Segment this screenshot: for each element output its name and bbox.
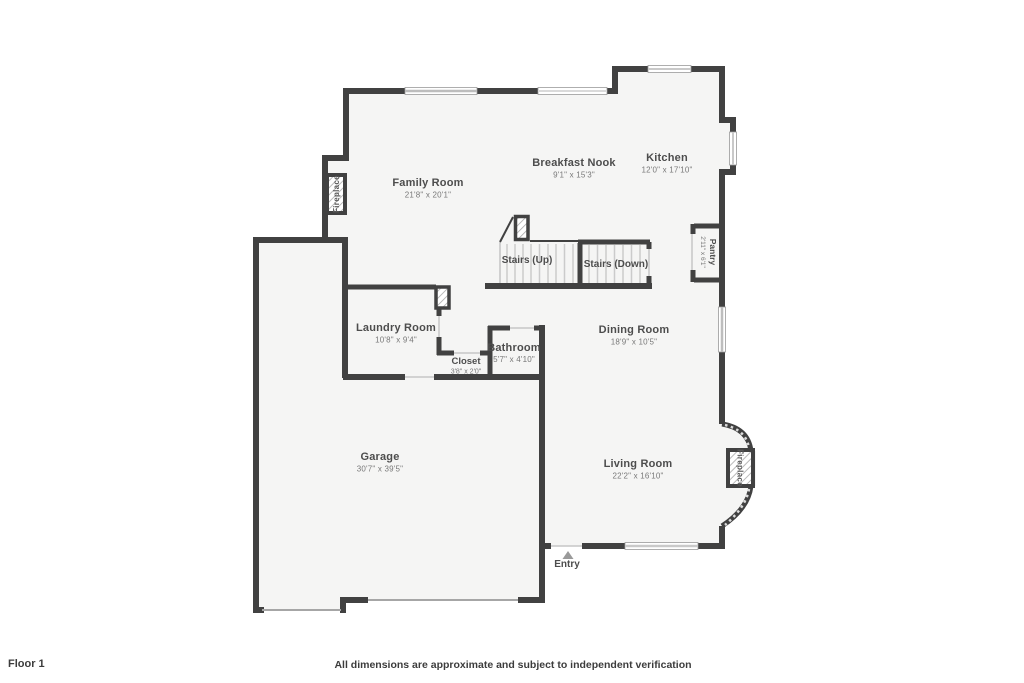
room-label-pantry: Pantry xyxy=(708,239,718,266)
family-fireplace-label-group: Fireplace xyxy=(332,175,341,213)
window xyxy=(730,132,737,165)
pantry-label-group: Pantry 2'11" x 6'1" xyxy=(699,236,718,268)
room-label-family-room: Family Room xyxy=(392,177,463,189)
stair-newel-icon xyxy=(516,217,529,240)
fireplace-label: Fireplace xyxy=(736,449,745,487)
room-label-kitchen: Kitchen xyxy=(646,152,688,164)
room-label-breakfast-nook: Breakfast Nook xyxy=(532,157,616,169)
window xyxy=(538,88,607,95)
entry-label: Entry xyxy=(554,559,580,570)
stairs-up-label: Stairs (Up) xyxy=(502,255,553,266)
room-label-bathroom: Bathroom xyxy=(487,342,541,354)
room-dims-bathroom: 5'7" x 4'10" xyxy=(493,355,535,364)
room-dims-kitchen: 12'0" x 17'10" xyxy=(641,166,692,175)
stairs-down-label: Stairs (Down) xyxy=(584,259,648,270)
laundry-chase-icon xyxy=(436,287,449,308)
room-dims-closet: 3'8" x 2'0" xyxy=(451,369,482,376)
window xyxy=(405,88,477,95)
fireplace-label: Fireplace xyxy=(332,175,341,213)
room-label-garage: Garage xyxy=(360,451,399,463)
room-dims-family-room: 21'8" x 20'1" xyxy=(405,191,451,200)
window xyxy=(648,66,691,73)
room-dims-breakfast-nook: 9'1" x 15'3" xyxy=(553,171,595,180)
floor-plan: Family Room 21'8" x 20'1" Breakfast Nook… xyxy=(0,0,1024,683)
room-dims-laundry-room: 10'8" x 9'4" xyxy=(375,336,417,345)
room-label-laundry-room: Laundry Room xyxy=(356,322,436,334)
room-dims-dining-room: 18'9" x 10'5" xyxy=(611,338,657,347)
floor-plan-page: Family Room 21'8" x 20'1" Breakfast Nook… xyxy=(0,0,1024,683)
disclaimer-text: All dimensions are approximate and subje… xyxy=(334,659,691,671)
window xyxy=(719,307,726,352)
room-dims-garage: 30'7" x 39'5" xyxy=(357,465,403,474)
room-label-dining-room: Dining Room xyxy=(599,324,670,336)
floor-label: Floor 1 xyxy=(8,658,45,670)
room-dims-living-room: 22'2" x 16'10" xyxy=(612,472,663,481)
room-label-living-room: Living Room xyxy=(604,458,673,470)
window xyxy=(625,543,698,550)
living-fireplace-label-group: Fireplace xyxy=(736,449,745,487)
room-label-closet: Closet xyxy=(451,356,481,367)
room-dims-pantry: 2'11" x 6'1" xyxy=(699,236,706,268)
